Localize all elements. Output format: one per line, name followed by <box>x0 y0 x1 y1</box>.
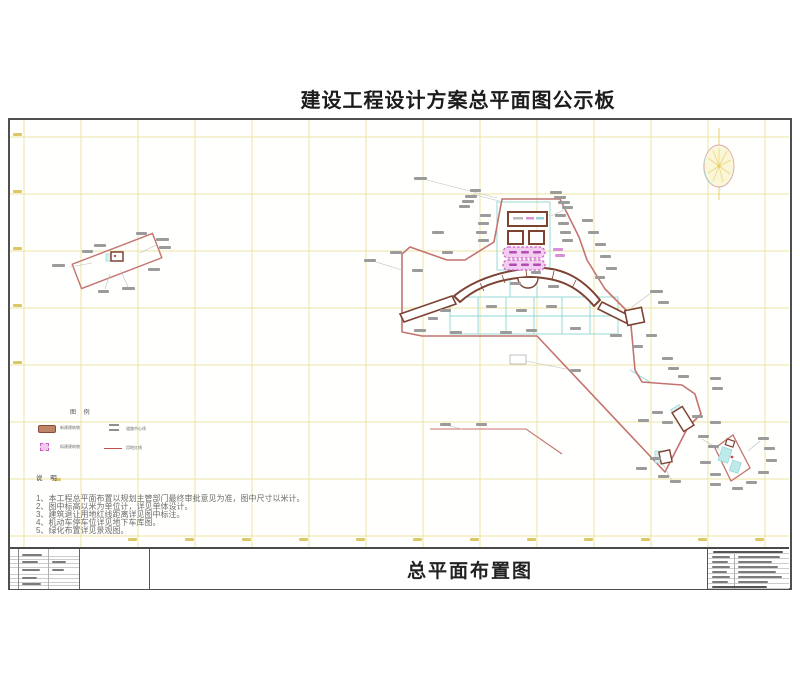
drawing-title: 总平面布置图 <box>390 549 550 589</box>
left-title-block <box>10 549 150 589</box>
west-parcel <box>52 232 171 293</box>
notes-header: 说 明 <box>36 472 316 482</box>
legend-label-proposed-building: 拟建建筑物 <box>60 444 80 450</box>
dimension-label-box <box>510 355 526 364</box>
notes: 说 明 1、本工程总平面布置以规划主管部门最终审批意见为准，图中尺寸以米计。 2… <box>36 472 316 528</box>
note-line: 5、绿化布置详见景观图。 <box>36 526 128 535</box>
board-title: 建设工程设计方案总平面图公示板 <box>116 84 800 113</box>
legend-label-red-line: 用地红线 <box>126 445 142 451</box>
legend-swatch-proposed-building <box>40 443 49 451</box>
pink-annotation-labels <box>553 248 565 257</box>
annotation-labels <box>364 177 777 490</box>
building-label-marks <box>513 217 544 220</box>
proposed-buildings <box>503 247 545 270</box>
title-band: 总平面布置图 <box>10 547 789 589</box>
legend-label-road-centerline: 道路中心线 <box>126 426 146 432</box>
right-title-block <box>707 549 789 589</box>
drawing-sheet: 图 例 新建建筑物 道路中心线 拟建建筑物 用地红线 说 明 1、本工程总平面布… <box>8 118 792 590</box>
legend-swatch-red-line <box>104 448 122 449</box>
legend: 图 例 新建建筑物 道路中心线 拟建建筑物 用地红线 <box>30 405 200 465</box>
legend-label-new-building: 新建建筑物 <box>60 425 80 431</box>
legend-swatch-road-centerline <box>106 422 122 434</box>
legend-header: 图 例 <box>70 407 93 416</box>
legend-swatch-new-building <box>38 425 56 433</box>
public-notice-board: 建设工程设计方案总平面图公示板 <box>0 0 800 674</box>
